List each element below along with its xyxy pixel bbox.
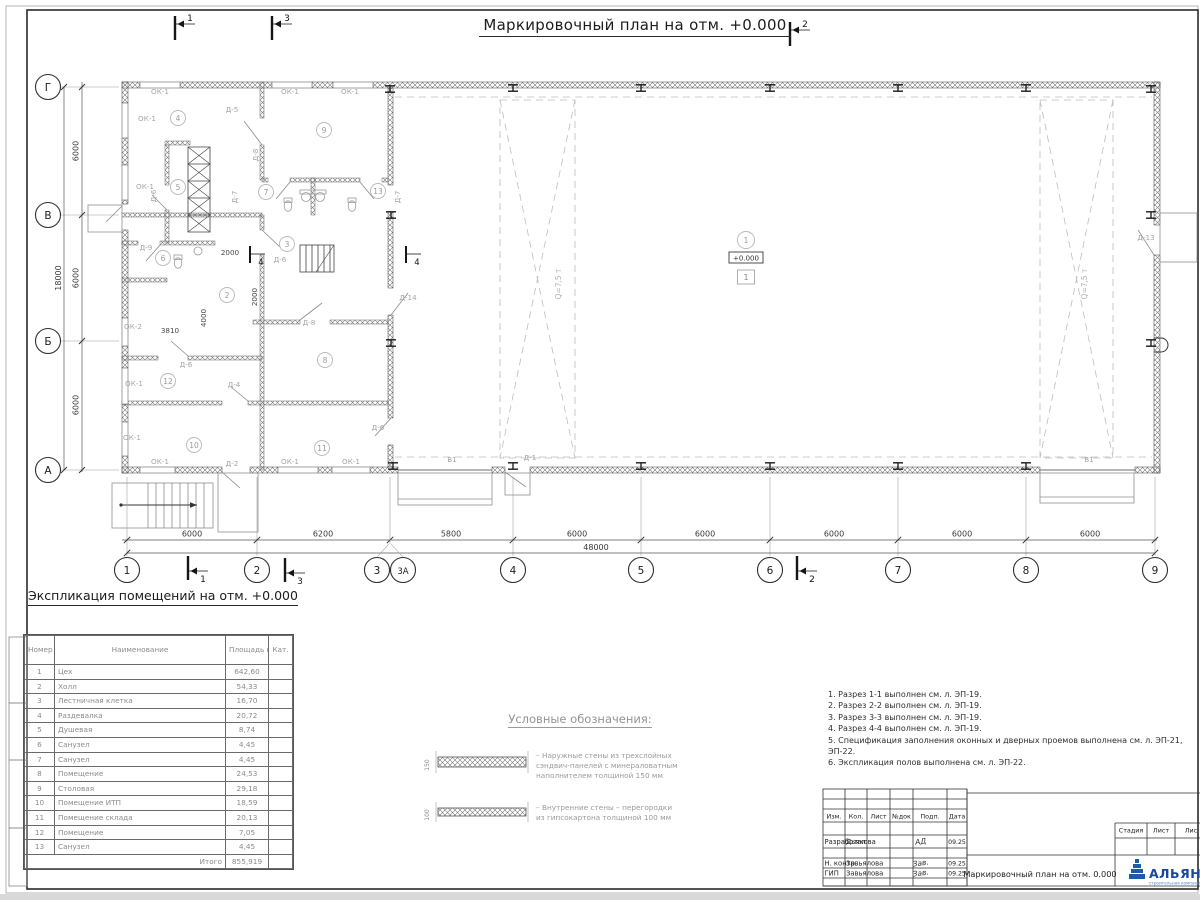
stamp-signature: АД xyxy=(914,836,927,847)
table-cell xyxy=(269,665,293,680)
stamp-drawing-title: Маркировочный план на отм. 0.000 xyxy=(963,869,1116,879)
dim-total-label: 48000 xyxy=(583,543,608,552)
door-window-label: Д-6 xyxy=(149,189,158,202)
table-cell xyxy=(269,737,293,752)
dim-label: 6000 xyxy=(72,268,81,288)
axis-label: Г xyxy=(45,82,51,94)
legend-marks: 150 100 xyxy=(424,751,528,822)
legend-line: наполнителем толщиной 150 мм xyxy=(536,771,716,781)
dim-label: 6000 xyxy=(567,530,587,539)
table-cell: 12 xyxy=(25,825,55,840)
legend-line: – Внутренние стены – перегородки xyxy=(536,803,716,813)
table-cell: Помещение xyxy=(55,825,226,840)
stamp-date: 09.25 xyxy=(948,839,966,846)
schedule-col-header: Площадь кв.м xyxy=(226,636,269,665)
axis-label: 8 xyxy=(1023,565,1030,577)
logo-text: АЛЬЯНС xyxy=(1149,866,1200,881)
stamp-col-header: №док xyxy=(891,813,911,821)
stamp-right-header: Лист xyxy=(1153,827,1169,835)
table-cell xyxy=(269,810,293,825)
table-row: 11Помещение склада20,13 xyxy=(25,810,293,825)
axis-label: А xyxy=(44,465,52,477)
dim-label: 6000 xyxy=(695,530,715,539)
room-number: 11 xyxy=(317,444,327,453)
drawing-sheet: +0.000 1 1233А456789ГВБА6000620058006000… xyxy=(0,0,1200,900)
dim-label: 6000 xyxy=(72,395,81,415)
section-flag-label: 3 xyxy=(284,14,290,24)
note-line: 2. Разрез 2-2 выполнен см. л. ЭП-19. xyxy=(828,700,1200,711)
stamp-signature: Зав. xyxy=(912,867,929,878)
company-logo: АЛЬЯНС строительная компания xyxy=(1129,859,1200,886)
axis-label: 4 xyxy=(510,565,517,577)
windows xyxy=(122,82,1135,473)
table-row: 4Раздевалка20,72 xyxy=(25,708,293,723)
room-number: 12 xyxy=(163,377,173,386)
table-row: 10Помещение ИТП18,59 xyxy=(25,796,293,811)
legend-item-exterior-walls: – Наружные стены из трехслойныхсэндвич-п… xyxy=(536,751,716,782)
room-number: 4 xyxy=(176,114,181,123)
door-window-label: Д-4 xyxy=(228,380,241,389)
table-row: 12Помещение7,05 xyxy=(25,825,293,840)
column-mark xyxy=(508,463,518,469)
table-row: 6Санузел4,45 xyxy=(25,737,293,752)
door-window-label: ОК-1 xyxy=(123,433,141,442)
table-cell: Итого xyxy=(25,854,226,869)
legend-item-interior-walls: – Внутренние стены – перегородкииз гипсо… xyxy=(536,803,716,823)
fixtures xyxy=(174,190,356,268)
stamp-name: Завьялова xyxy=(846,860,883,868)
table-cell: Помещение ИТП xyxy=(55,796,226,811)
stamp-role: ГИП xyxy=(825,870,839,878)
door-window-label: ОК-1 xyxy=(342,457,360,466)
table-cell: 8 xyxy=(25,767,55,782)
table-cell: 13 xyxy=(25,840,55,855)
room-schedule: Номер пом.НаименованиеПлощадь кв.мКат. 1… xyxy=(24,635,293,869)
schedule-heading: Экспликация помещений на отм. +0.000 xyxy=(28,588,298,603)
table-cell: 9 xyxy=(25,781,55,796)
legend-dim-150: 150 xyxy=(424,759,431,771)
axis-label: 5 xyxy=(638,565,645,577)
table-cell: 855,919 xyxy=(226,854,269,869)
door-window-label: ОК-1 xyxy=(138,114,156,123)
section-flag-label: 4 xyxy=(414,258,419,268)
axis-label: 7 xyxy=(895,565,902,577)
dim-label: 6000 xyxy=(72,141,81,161)
notes-list: 1. Разрез 1-1 выполнен см. л. ЭП-19.2. Р… xyxy=(828,689,1200,769)
table-row: 1Цех642,60 xyxy=(25,665,293,680)
section-flag-label: 2 xyxy=(809,575,815,585)
generated-annotations: 1233А456789ГВБА6000620058006000600060006… xyxy=(36,14,1168,587)
table-cell: Помещение склада xyxy=(55,810,226,825)
schedule-col-header: Кат. xyxy=(269,636,293,665)
door-window-label: Д-6 xyxy=(180,360,193,369)
drawing-title: Маркировочный план на отм. +0.000 xyxy=(420,16,850,34)
column-mark xyxy=(386,212,396,218)
door-window-label: ОК-1 xyxy=(151,457,169,466)
dim-label: 6000 xyxy=(824,530,844,539)
logo-subtext: строительная компания xyxy=(1149,881,1200,886)
table-cell xyxy=(269,694,293,709)
legend-line: из гипсокартона толщиной 100 мм xyxy=(536,813,716,823)
stamp-col-header: Дата xyxy=(949,813,966,821)
stamp-col-header: Изм. xyxy=(826,813,841,821)
stamp-right-header: Стадия xyxy=(1119,827,1144,835)
interior-stair xyxy=(300,245,334,272)
note-line: 6. Экспликация полов выполнена см. л. ЭП… xyxy=(828,757,1200,768)
table-cell: 4,45 xyxy=(226,840,269,855)
room-number: 8 xyxy=(323,356,328,365)
table-cell: 20,72 xyxy=(226,708,269,723)
column-mark xyxy=(386,340,396,346)
room-number: 9 xyxy=(322,126,327,135)
table-cell: Столовая xyxy=(55,781,226,796)
dim-label: 6000 xyxy=(952,530,972,539)
door-window-label: Д-8 xyxy=(303,318,316,327)
stamp-name: Завьялова xyxy=(846,870,883,878)
room-number: 13 xyxy=(373,187,383,196)
table-cell xyxy=(269,781,293,796)
table-cell xyxy=(269,854,293,869)
table-cell xyxy=(269,708,293,723)
axis-label: 6 xyxy=(767,565,774,577)
door-window-label: Q=7,5 т xyxy=(1080,268,1089,299)
schedule-col-header: Наименование xyxy=(55,636,226,665)
door-window-label: ОК-1 xyxy=(125,379,143,388)
door-window-label: В1 xyxy=(447,455,457,464)
table-cell: 5 xyxy=(25,723,55,738)
section-flag-label: 1 xyxy=(187,14,193,24)
axis-label: Б xyxy=(44,336,51,348)
door-window-label: В1 xyxy=(1084,455,1094,464)
table-cell: 24,53 xyxy=(226,767,269,782)
section-flag-label: 1 xyxy=(200,575,206,585)
door-window-label: Д-6 xyxy=(274,255,287,264)
table-cell xyxy=(269,796,293,811)
stamp-name: Дьякова xyxy=(846,838,876,846)
table-cell: 54,33 xyxy=(226,679,269,694)
building-walls xyxy=(122,82,1160,473)
table-row: 2Холл54,33 xyxy=(25,679,293,694)
room-number: 10 xyxy=(189,441,199,450)
section-flag-label: 3 xyxy=(297,577,303,587)
dim-label: 6000 xyxy=(182,530,202,539)
table-row: 5Душевая8,74 xyxy=(25,723,293,738)
logo-pyramid-icon xyxy=(1129,859,1145,879)
table-cell: 16,70 xyxy=(226,694,269,709)
room-number: 2 xyxy=(225,291,230,300)
table-cell: 4,45 xyxy=(226,737,269,752)
table-cell: 29,18 xyxy=(226,781,269,796)
table-cell xyxy=(269,723,293,738)
table-cell xyxy=(269,767,293,782)
dim-label: 5800 xyxy=(441,530,461,539)
table-row: 13Санузел4,45 xyxy=(25,840,293,855)
door-window-label: Д-14 xyxy=(399,293,417,302)
door-window-label: Q=7,5 т xyxy=(554,268,563,299)
dim-label: 6200 xyxy=(313,530,333,539)
table-row: 7Санузел4,45 xyxy=(25,752,293,767)
table-cell: 1 xyxy=(25,665,55,680)
table-row: 8Помещение24,53 xyxy=(25,767,293,782)
legend-dim-100: 100 xyxy=(424,809,431,821)
room-number: 7 xyxy=(264,188,269,197)
door-window-label: Д-7 xyxy=(230,191,239,204)
axis-label: 1 xyxy=(124,565,131,577)
door-window-label: Д-9 xyxy=(140,243,153,252)
dim-label: 4000 xyxy=(199,308,208,327)
table-cell: Цех xyxy=(55,665,226,680)
table-cell: Душевая xyxy=(55,723,226,738)
table-cell: 4,45 xyxy=(226,752,269,767)
door-window-label: Д-8 xyxy=(251,148,260,161)
axis-label: 3А xyxy=(397,567,408,577)
axis-3-3a-link xyxy=(377,477,403,557)
axis-label: 2 xyxy=(254,565,261,577)
legend-heading: Условные обозначения: xyxy=(468,712,692,726)
door-window-label: Д-7 xyxy=(393,191,402,204)
door-window-label: Д-6 xyxy=(372,423,385,432)
table-cell: Санузел xyxy=(55,737,226,752)
door-window-label: ОК-1 xyxy=(281,457,299,466)
room-number: 1 xyxy=(744,236,749,245)
table-cell xyxy=(269,825,293,840)
elevation-marker: +0.000 1 xyxy=(729,252,763,284)
table-cell: 642,60 xyxy=(226,665,269,680)
table-cell: 2 xyxy=(25,679,55,694)
legend-line: сэндвич-панелей с минераловатным xyxy=(536,761,716,771)
table-row: 3Лестничная клетка16,70 xyxy=(25,694,293,709)
stamp-col-header: Подп. xyxy=(920,813,939,821)
axis-label: 3 xyxy=(374,565,381,577)
dim-label: 2000 xyxy=(250,287,259,306)
door-window-label: ОК-1 xyxy=(151,87,169,96)
schedule-col-header: Номер пом. xyxy=(25,636,55,665)
crane-zones xyxy=(395,97,1152,458)
room-number: 3 xyxy=(285,240,290,249)
table-cell: Раздевалка xyxy=(55,708,226,723)
table-cell: 20,13 xyxy=(226,810,269,825)
note-line: 5. Спецификация заполнения оконных и две… xyxy=(828,735,1200,758)
stamp-col-header: Кол. xyxy=(849,813,864,821)
room-number: 6 xyxy=(161,254,166,263)
note-line: 1. Разрез 1-1 выполнен см. л. ЭП-19. xyxy=(828,689,1200,700)
dim-label: 3810 xyxy=(161,326,180,335)
legend-line: – Наружные стены из трехслойных xyxy=(536,751,716,761)
table-cell: 6 xyxy=(25,737,55,752)
door-window-label: Д-5 xyxy=(226,105,239,114)
table-cell: 3 xyxy=(25,694,55,709)
door-window-label: Д-1 xyxy=(524,453,537,462)
dim-label: 6000 xyxy=(1080,530,1100,539)
table-cell xyxy=(269,752,293,767)
dim-total-label: 18000 xyxy=(54,265,63,290)
room-number: 5 xyxy=(176,183,181,192)
note-line: 4. Разрез 4-4 выполнен см. л. ЭП-19. xyxy=(828,723,1200,734)
table-cell: Холл xyxy=(55,679,226,694)
axis-label: В xyxy=(44,210,51,222)
stamp-col-header: Лист xyxy=(870,813,886,821)
table-row: 9Столовая29,18 xyxy=(25,781,293,796)
table-cell: Лестничная клетка xyxy=(55,694,226,709)
partitions xyxy=(122,82,388,470)
table-cell: 7,05 xyxy=(226,825,269,840)
table-total-row: Итого855,919 xyxy=(25,854,293,869)
room-schedule-table: Номер пом.НаименованиеПлощадь кв.мКат. 1… xyxy=(24,635,293,869)
table-cell: 8,74 xyxy=(226,723,269,738)
door-window-label: Д-13 xyxy=(1137,233,1154,242)
table-cell: 18,59 xyxy=(226,796,269,811)
table-cell: Помещение xyxy=(55,767,226,782)
shower-cabins xyxy=(188,147,210,232)
section-flag-label: 4 xyxy=(258,258,263,268)
floor-type-marker: 1 xyxy=(743,273,748,282)
door-window-label: ОК-2 xyxy=(124,322,142,331)
table-cell: Санузел xyxy=(55,752,226,767)
door-window-label: Д-2 xyxy=(226,459,239,468)
stamp-right-header: Лис xyxy=(1185,827,1198,835)
axis-label: 9 xyxy=(1152,565,1159,577)
note-line: 3. Разрез 3-3 выполнен см. л. ЭП-19. xyxy=(828,712,1200,723)
door-window-label: ОК-1 xyxy=(341,87,359,96)
table-cell: 10 xyxy=(25,796,55,811)
table-cell: 11 xyxy=(25,810,55,825)
table-cell: 4 xyxy=(25,708,55,723)
dim-label: 2000 xyxy=(221,248,240,257)
table-cell: 7 xyxy=(25,752,55,767)
table-cell: Санузел xyxy=(55,840,226,855)
table-cell xyxy=(269,679,293,694)
elevation-value: +0.000 xyxy=(733,255,759,263)
table-cell xyxy=(269,840,293,855)
stamp-date: 09.25 xyxy=(948,861,966,868)
door-window-label: ОК-1 xyxy=(281,87,299,96)
